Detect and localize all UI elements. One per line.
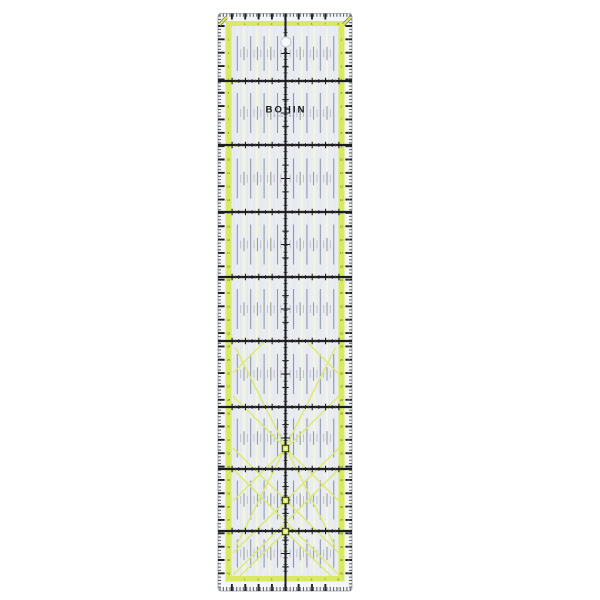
svg-text:18: 18 [340, 265, 344, 269]
svg-text:35: 35 [340, 491, 344, 495]
svg-text:19: 19 [340, 278, 344, 282]
svg-text:37: 37 [227, 518, 231, 522]
svg-text:20: 20 [340, 291, 344, 295]
svg-text:39: 39 [340, 545, 344, 549]
svg-text:11: 11 [340, 171, 343, 175]
svg-text:34: 34 [340, 478, 344, 482]
svg-text:41: 41 [340, 572, 344, 576]
svg-text:39: 39 [227, 545, 231, 549]
svg-text:28: 28 [227, 398, 231, 402]
svg-text:27: 27 [340, 385, 344, 389]
svg-text:32: 32 [347, 451, 351, 455]
svg-text:19: 19 [227, 278, 231, 282]
svg-text:40: 40 [347, 558, 351, 562]
svg-text:13: 13 [340, 198, 344, 202]
svg-text:41: 41 [347, 571, 351, 575]
svg-text:20: 20 [347, 291, 351, 295]
svg-text:21: 21 [340, 305, 344, 309]
svg-text:22: 22 [347, 318, 351, 322]
svg-text:13: 13 [227, 198, 231, 202]
svg-text:12: 12 [340, 184, 344, 188]
svg-text:24: 24 [340, 345, 344, 349]
svg-text:10: 10 [227, 158, 231, 162]
svg-text:19: 19 [347, 278, 351, 282]
svg-text:29: 29 [347, 411, 351, 415]
svg-text:41: 41 [227, 572, 231, 576]
svg-text:10: 10 [347, 158, 351, 162]
svg-text:27: 27 [347, 385, 351, 389]
svg-text:27: 27 [227, 385, 231, 389]
svg-text:15: 15 [347, 224, 351, 228]
svg-text:36: 36 [347, 505, 351, 509]
svg-text:16: 16 [347, 238, 351, 242]
svg-text:12: 12 [227, 184, 231, 188]
svg-text:13: 13 [347, 198, 351, 202]
svg-text:23: 23 [340, 331, 344, 335]
svg-text:23: 23 [347, 331, 351, 335]
svg-text:37: 37 [340, 518, 344, 522]
svg-text:40: 40 [340, 558, 344, 562]
svg-text:31: 31 [340, 438, 344, 442]
svg-text:29: 29 [227, 411, 231, 415]
svg-text:26: 26 [340, 371, 344, 375]
svg-text:17: 17 [340, 251, 344, 255]
svg-text:16: 16 [340, 238, 344, 242]
svg-text:10: 10 [340, 158, 344, 162]
svg-text:25: 25 [340, 358, 344, 362]
svg-text:29: 29 [340, 411, 344, 415]
svg-text:20: 20 [227, 291, 231, 295]
svg-text:36: 36 [340, 505, 344, 509]
svg-text:12: 12 [347, 184, 351, 188]
svg-text:36: 36 [227, 505, 231, 509]
svg-text:15: 15 [227, 224, 231, 228]
svg-text:21: 21 [227, 305, 231, 309]
svg-text:31: 31 [227, 438, 231, 442]
svg-text:16: 16 [227, 238, 231, 242]
svg-text:35: 35 [227, 491, 231, 495]
svg-text:24: 24 [347, 345, 351, 349]
svg-text:22: 22 [340, 318, 344, 322]
svg-text:28: 28 [340, 398, 344, 402]
svg-text:28: 28 [347, 398, 351, 402]
svg-text:18: 18 [347, 264, 351, 268]
svg-text:11: 11 [347, 171, 350, 175]
svg-text:40: 40 [227, 558, 231, 562]
svg-text:31: 31 [347, 438, 351, 442]
svg-text:30: 30 [227, 425, 231, 429]
svg-text:24: 24 [227, 345, 231, 349]
svg-text:34: 34 [227, 478, 231, 482]
svg-text:35: 35 [347, 491, 351, 495]
svg-text:FRANCE: FRANCE [274, 114, 296, 118]
svg-text:30: 30 [340, 425, 344, 429]
svg-text:15: 15 [340, 224, 344, 228]
svg-text:23: 23 [227, 331, 231, 335]
svg-text:18: 18 [227, 265, 231, 269]
svg-text:22: 22 [227, 318, 231, 322]
svg-text:11: 11 [227, 171, 230, 175]
svg-text:32: 32 [340, 451, 344, 455]
svg-text:32: 32 [227, 451, 231, 455]
svg-text:39: 39 [347, 545, 351, 549]
svg-text:30: 30 [347, 425, 351, 429]
svg-text:17: 17 [347, 251, 351, 255]
svg-text:37: 37 [347, 518, 351, 522]
svg-text:17: 17 [227, 251, 231, 255]
svg-text:26: 26 [227, 371, 231, 375]
svg-text:26: 26 [347, 371, 351, 375]
svg-text:25: 25 [347, 358, 351, 362]
svg-text:25: 25 [227, 358, 231, 362]
svg-text:34: 34 [347, 478, 351, 482]
svg-text:21: 21 [347, 304, 351, 308]
